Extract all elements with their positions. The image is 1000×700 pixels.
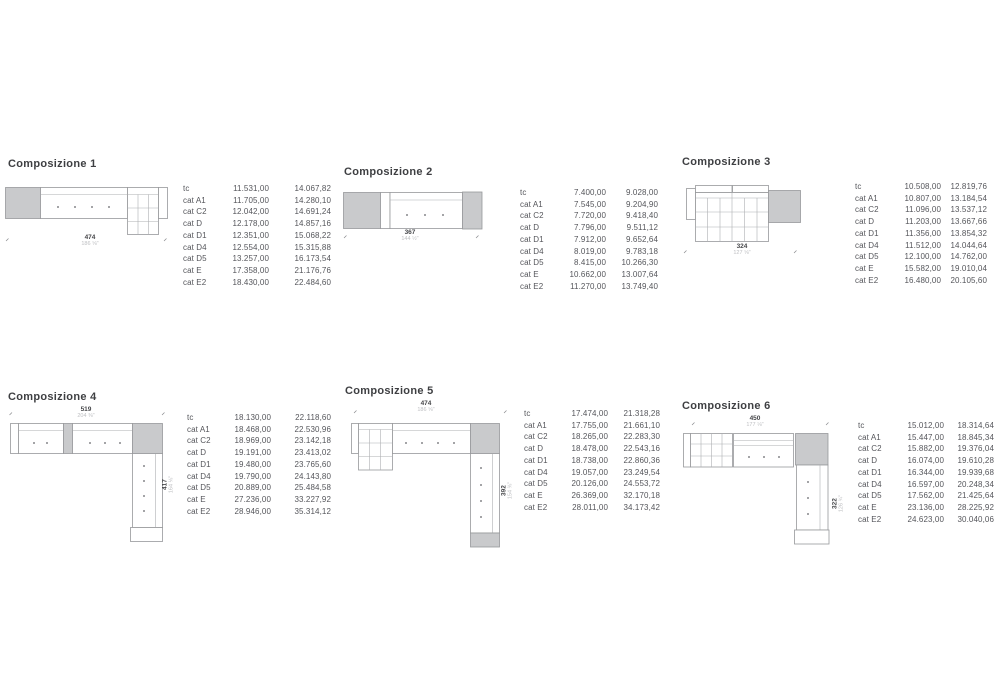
- composition-title: Composizione 6: [682, 400, 771, 412]
- price-value-col2: 14.857,16: [269, 218, 331, 230]
- price-value-col1: 11.096,00: [895, 204, 941, 216]
- price-value-col2: 24.553,72: [608, 478, 660, 490]
- sofa-plan-svg: [8, 406, 180, 546]
- depth-cm: 417: [162, 465, 169, 505]
- price-row-label: cat A1: [855, 193, 895, 205]
- end-element: [344, 193, 381, 229]
- width-dimension: 474 186 ⅝": [386, 400, 466, 413]
- end-element: [769, 191, 801, 223]
- sofa-plan-diagram: 450 177 ⅛" 322 126 ¾": [682, 415, 854, 558]
- price-value-col1: 18.738,00: [564, 455, 608, 467]
- price-row-label: cat C2: [855, 204, 895, 216]
- price-value-col1: 16.597,00: [898, 479, 944, 491]
- width-cm: 324: [702, 243, 782, 250]
- width-dimension: 474 186 ⅝": [45, 234, 135, 247]
- sofa-plan-svg: [682, 415, 854, 558]
- price-row-label: cat D: [858, 455, 898, 467]
- price-table: tc17.474,0021.318,28cat A117.755,0021.66…: [524, 408, 660, 513]
- price-value-col2: 32.170,18: [608, 490, 660, 502]
- width-dimension: 324 127 ⅝": [702, 243, 782, 256]
- price-value-col1: 18.468,00: [227, 424, 271, 436]
- price-row-label: cat D4: [187, 471, 227, 483]
- price-row-label: cat D5: [183, 253, 223, 265]
- price-value-col2: 23.413,02: [271, 447, 331, 459]
- price-value-col1: 11.203,00: [895, 216, 941, 228]
- price-row-label: cat D4: [183, 242, 223, 254]
- price-value-col1: 7.796,00: [560, 222, 606, 234]
- width-inches: 144 ½": [370, 236, 450, 242]
- depth-cm: 322: [832, 484, 839, 524]
- price-row-label: cat A1: [858, 432, 898, 444]
- price-row-label: cat D: [183, 218, 223, 230]
- price-row-label: cat D1: [855, 228, 895, 240]
- width-inches: 177 ⅛": [715, 422, 795, 428]
- price-value-col2: 15.068,22: [269, 230, 331, 242]
- price-row-label: tc: [524, 408, 564, 420]
- price-value-col1: 27.236,00: [227, 494, 271, 506]
- depth-dimension: 417 164 ⅛": [162, 465, 175, 505]
- width-inches: 186 ⅝": [45, 241, 135, 247]
- price-value-col1: 28.011,00: [564, 502, 608, 514]
- armrest: [381, 193, 391, 229]
- price-table: tc15.012,0018.314,64cat A115.447,0018.84…: [858, 420, 994, 525]
- end-element: [471, 533, 500, 547]
- armrest: [352, 424, 359, 454]
- depth-inches: 164 ⅛": [169, 465, 175, 505]
- width-cm: 474: [386, 400, 466, 407]
- price-value-col2: 21.318,28: [608, 408, 660, 420]
- price-row-label: cat E: [855, 263, 895, 275]
- width-inches: 204 ⅜": [46, 413, 126, 419]
- price-value-col2: 19.939,68: [944, 467, 994, 479]
- corner-element: [471, 424, 500, 454]
- price-row-label: cat E: [524, 490, 564, 502]
- price-value-col2: 9.028,00: [606, 187, 658, 199]
- price-value-col2: 19.610,28: [944, 455, 994, 467]
- seat-section-vertical: [471, 454, 500, 534]
- price-value-col1: 19.790,00: [227, 471, 271, 483]
- composition-title: Composizione 4: [8, 391, 97, 403]
- price-row-label: cat D1: [858, 467, 898, 479]
- price-value-col1: 7.720,00: [560, 210, 606, 222]
- price-row-label: cat E: [187, 494, 227, 506]
- price-value-col2: 14.691,24: [269, 206, 331, 218]
- armrest: [11, 424, 19, 454]
- price-value-col1: 13.257,00: [223, 253, 269, 265]
- end-element: [795, 530, 830, 544]
- price-row-label: cat D: [855, 216, 895, 228]
- price-value-col1: 8.019,00: [560, 246, 606, 258]
- price-value-col1: 16.074,00: [898, 455, 944, 467]
- width-dimension: 450 177 ⅛": [715, 415, 795, 428]
- price-value-col1: 18.969,00: [227, 435, 271, 447]
- price-value-col2: 9.652,64: [606, 234, 658, 246]
- price-row-label: cat C2: [183, 206, 223, 218]
- price-value-col1: 8.415,00: [560, 257, 606, 269]
- price-table: tc18.130,0022.118,60cat A118.468,0022.53…: [187, 412, 331, 517]
- price-value-col2: 22.283,30: [608, 431, 660, 443]
- price-value-col2: 20.248,34: [944, 479, 994, 491]
- price-value-col1: 15.582,00: [895, 263, 941, 275]
- depth-inches: 126 ¾": [839, 484, 845, 524]
- price-value-col2: 12.819,76: [941, 181, 987, 193]
- armrest: [684, 434, 691, 468]
- price-value-col1: 10.807,00: [895, 193, 941, 205]
- price-value-col1: 15.012,00: [898, 420, 944, 432]
- price-value-col2: 22.118,60: [271, 412, 331, 424]
- price-row-label: cat A1: [187, 424, 227, 436]
- price-value-col2: 14.044,64: [941, 240, 987, 252]
- price-row-label: cat E: [520, 269, 560, 281]
- price-value-col1: 11.531,00: [223, 183, 269, 195]
- price-value-col1: 16.344,00: [898, 467, 944, 479]
- sofa-plan-svg: [345, 400, 517, 550]
- price-value-col2: 23.249,54: [608, 467, 660, 479]
- seat-section: [19, 424, 64, 454]
- price-row-label: cat D1: [187, 459, 227, 471]
- price-value-col1: 23.136,00: [898, 502, 944, 514]
- price-value-col1: 12.100,00: [895, 251, 941, 263]
- price-row-label: cat D: [520, 222, 560, 234]
- price-value-col2: 19.376,04: [944, 443, 994, 455]
- price-value-col1: 20.126,00: [564, 478, 608, 490]
- price-value-col2: 18.314,64: [944, 420, 994, 432]
- price-row-label: cat E2: [187, 506, 227, 518]
- price-value-col1: 16.480,00: [895, 275, 941, 287]
- price-row-label: cat D: [524, 443, 564, 455]
- price-row-label: cat D5: [520, 257, 560, 269]
- end-element: [6, 188, 41, 219]
- seat-section-vertical: [133, 454, 163, 528]
- price-value-col2: 13.667,66: [941, 216, 987, 228]
- connector-element: [64, 424, 73, 454]
- price-row-label: cat E: [858, 502, 898, 514]
- price-row-label: cat C2: [520, 210, 560, 222]
- price-value-col1: 12.178,00: [223, 218, 269, 230]
- end-element: [131, 528, 163, 542]
- width-cm: 519: [46, 406, 126, 413]
- width-inches: 127 ⅝": [702, 250, 782, 256]
- price-row-label: cat D: [187, 447, 227, 459]
- price-value-col2: 9.204,90: [606, 199, 658, 211]
- price-value-col2: 9.511,12: [606, 222, 658, 234]
- price-row-label: cat D4: [520, 246, 560, 258]
- price-value-col1: 11.270,00: [560, 281, 606, 293]
- price-value-col1: 17.474,00: [564, 408, 608, 420]
- price-value-col2: 21.176,76: [269, 265, 331, 277]
- price-row-label: cat D4: [524, 467, 564, 479]
- price-value-col1: 7.912,00: [560, 234, 606, 246]
- width-cm: 450: [715, 415, 795, 422]
- corner-element: [133, 424, 163, 454]
- sofa-plan-diagram: 474 186 ⅝": [5, 184, 170, 252]
- seat-section: [734, 434, 794, 468]
- price-row-label: cat E2: [520, 281, 560, 293]
- width-dimension: 367 144 ½": [370, 229, 450, 242]
- sofa-plan-diagram: 474 186 ⅝" 392 154 ⅜": [345, 400, 517, 550]
- price-value-col2: 28.225,92: [944, 502, 994, 514]
- sofa-plan-diagram: 324 127 ⅝": [682, 185, 848, 261]
- price-table: tc11.531,0014.067,82cat A111.705,0014.28…: [183, 183, 331, 288]
- price-value-col1: 12.554,00: [223, 242, 269, 254]
- price-value-col1: 18.478,00: [564, 443, 608, 455]
- price-row-label: tc: [187, 412, 227, 424]
- price-value-col1: 11.705,00: [223, 195, 269, 207]
- price-value-col1: 19.480,00: [227, 459, 271, 471]
- backrest: [733, 186, 769, 193]
- price-value-col2: 14.067,82: [269, 183, 331, 195]
- sofa-plan-diagram: 367 144 ½": [343, 191, 483, 245]
- price-value-col1: 20.889,00: [227, 482, 271, 494]
- price-value-col2: 30.040,06: [944, 514, 994, 526]
- price-value-col2: 13.749,40: [606, 281, 658, 293]
- depth-dimension: 392 154 ⅜": [501, 471, 514, 511]
- price-value-col2: 9.418,40: [606, 210, 658, 222]
- price-value-col1: 7.400,00: [560, 187, 606, 199]
- armrest: [159, 188, 168, 219]
- price-value-col2: 19.010,04: [941, 263, 987, 275]
- price-value-col2: 15.315,88: [269, 242, 331, 254]
- chaise-section: [359, 424, 393, 471]
- backrest: [696, 186, 733, 193]
- price-row-label: cat D5: [858, 490, 898, 502]
- price-row-label: cat C2: [858, 443, 898, 455]
- price-value-col1: 18.130,00: [227, 412, 271, 424]
- price-value-col2: 21.425,64: [944, 490, 994, 502]
- price-value-col2: 9.783,18: [606, 246, 658, 258]
- price-row-label: cat A1: [183, 195, 223, 207]
- width-inches: 186 ⅝": [386, 407, 466, 413]
- price-row-label: tc: [858, 420, 898, 432]
- price-value-col2: 13.007,64: [606, 269, 658, 281]
- price-row-label: cat C2: [187, 435, 227, 447]
- price-value-col1: 18.430,00: [223, 277, 269, 289]
- seat-section: [73, 424, 133, 454]
- price-value-col1: 11.356,00: [895, 228, 941, 240]
- price-value-col1: 15.447,00: [898, 432, 944, 444]
- price-value-col2: 20.105,60: [941, 275, 987, 287]
- price-value-col1: 15.882,00: [898, 443, 944, 455]
- seat-section: [393, 424, 471, 454]
- price-row-label: cat D4: [858, 479, 898, 491]
- price-row-label: cat E2: [183, 277, 223, 289]
- price-value-col1: 18.265,00: [564, 431, 608, 443]
- composition-title: Composizione 2: [344, 166, 433, 178]
- price-value-col2: 23.765,60: [271, 459, 331, 471]
- price-value-col1: 17.358,00: [223, 265, 269, 277]
- price-value-col1: 24.623,00: [898, 514, 944, 526]
- price-row-label: tc: [183, 183, 223, 195]
- price-table: tc7.400,009.028,00cat A17.545,009.204,90…: [520, 187, 658, 292]
- price-row-label: cat D1: [524, 455, 564, 467]
- price-value-col1: 17.562,00: [898, 490, 944, 502]
- price-row-label: cat D5: [524, 478, 564, 490]
- price-row-label: cat E2: [858, 514, 898, 526]
- price-value-col2: 13.537,12: [941, 204, 987, 216]
- price-row-label: cat D5: [187, 482, 227, 494]
- price-row-label: cat D4: [855, 240, 895, 252]
- price-value-col1: 12.042,00: [223, 206, 269, 218]
- end-element: [463, 192, 483, 229]
- price-row-label: cat D1: [520, 234, 560, 246]
- price-value-col2: 22.860,36: [608, 455, 660, 467]
- depth-cm: 392: [501, 471, 508, 511]
- price-row-label: tc: [855, 181, 895, 193]
- sofa-plan-diagram: 519 204 ⅜" 417 164 ⅛": [8, 406, 180, 546]
- price-value-col1: 17.755,00: [564, 420, 608, 432]
- price-value-col2: 16.173,54: [269, 253, 331, 265]
- price-value-col1: 28.946,00: [227, 506, 271, 518]
- price-table: tc10.508,0012.819,76cat A110.807,0013.18…: [855, 181, 987, 286]
- price-value-col2: 22.484,60: [269, 277, 331, 289]
- price-row-label: cat A1: [524, 420, 564, 432]
- catalog-page: Composizione 1 474 186 ⅝": [0, 0, 1000, 700]
- price-value-col1: 12.351,00: [223, 230, 269, 242]
- price-value-col2: 34.173,42: [608, 502, 660, 514]
- seat-section: [41, 188, 128, 219]
- price-row-label: cat E2: [855, 275, 895, 287]
- price-value-col2: 14.280,10: [269, 195, 331, 207]
- price-value-col2: 18.845,34: [944, 432, 994, 444]
- price-row-label: cat A1: [520, 199, 560, 211]
- corner-element: [796, 434, 829, 466]
- price-value-col1: 19.191,00: [227, 447, 271, 459]
- price-value-col2: 22.543,16: [608, 443, 660, 455]
- price-value-col2: 13.184,54: [941, 193, 987, 205]
- price-value-col2: 14.762,00: [941, 251, 987, 263]
- price-value-col2: 24.143,80: [271, 471, 331, 483]
- price-value-col1: 19.057,00: [564, 467, 608, 479]
- seat-section: [390, 193, 463, 229]
- price-value-col2: 10.266,30: [606, 257, 658, 269]
- price-value-col2: 35.314,12: [271, 506, 331, 518]
- price-row-label: cat D5: [855, 251, 895, 263]
- price-row-label: cat E: [183, 265, 223, 277]
- price-row-label: tc: [520, 187, 560, 199]
- depth-dimension: 322 126 ¾": [832, 484, 845, 524]
- price-row-label: cat E2: [524, 502, 564, 514]
- width-dimension: 519 204 ⅜": [46, 406, 126, 419]
- price-value-col2: 23.142,18: [271, 435, 331, 447]
- price-value-col2: 13.854,32: [941, 228, 987, 240]
- composition-title: Composizione 5: [345, 385, 434, 397]
- composition-title: Composizione 1: [8, 158, 97, 170]
- seat-section-vertical: [797, 465, 829, 530]
- price-value-col1: 11.512,00: [895, 240, 941, 252]
- price-value-col1: 10.662,00: [560, 269, 606, 281]
- price-row-label: cat D1: [183, 230, 223, 242]
- price-row-label: cat C2: [524, 431, 564, 443]
- price-value-col2: 25.484,58: [271, 482, 331, 494]
- price-value-col2: 22.530,96: [271, 424, 331, 436]
- width-cm: 367: [370, 229, 450, 236]
- armrest: [687, 189, 696, 220]
- width-cm: 474: [45, 234, 135, 241]
- price-value-col2: 21.661,10: [608, 420, 660, 432]
- price-value-col2: 33.227,92: [271, 494, 331, 506]
- composition-title: Composizione 3: [682, 156, 771, 168]
- depth-inches: 154 ⅜": [508, 471, 514, 511]
- price-value-col1: 7.545,00: [560, 199, 606, 211]
- price-value-col1: 26.369,00: [564, 490, 608, 502]
- price-value-col1: 10.508,00: [895, 181, 941, 193]
